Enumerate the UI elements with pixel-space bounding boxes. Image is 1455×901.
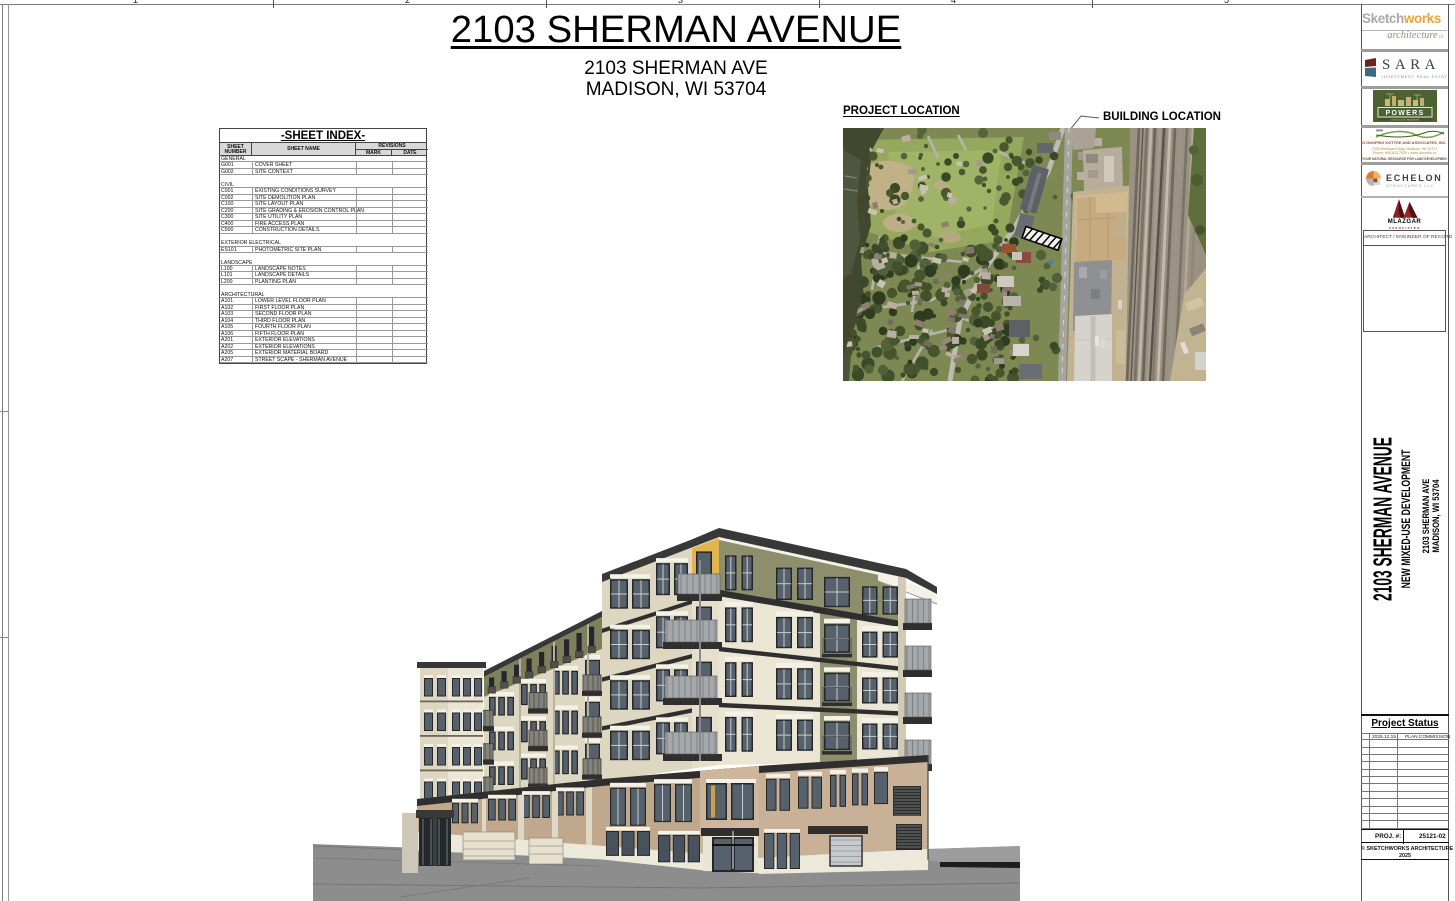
svg-text:POWERS: POWERS	[1386, 110, 1425, 117]
svg-text:CONSTRUCTION • MANAGEMENT: CONSTRUCTION • MANAGEMENT	[1391, 118, 1421, 121]
